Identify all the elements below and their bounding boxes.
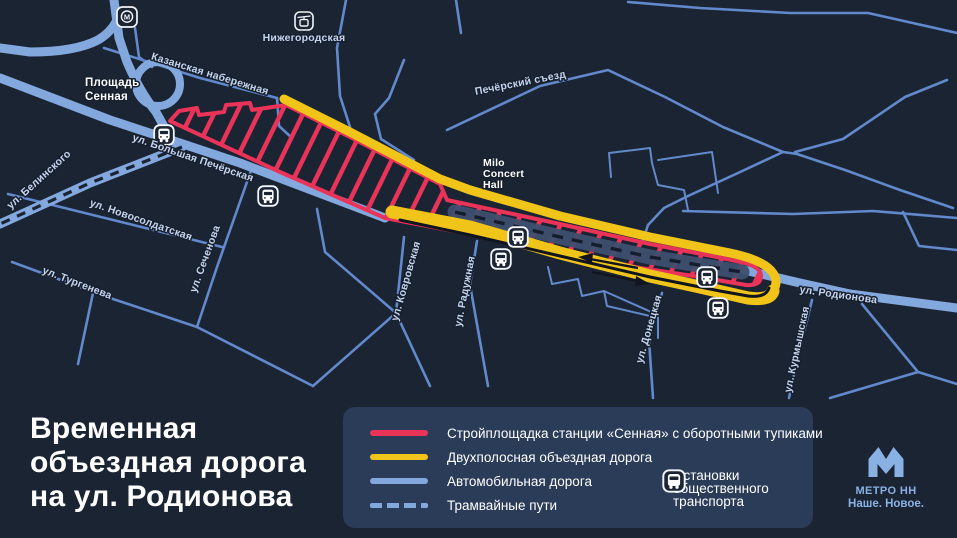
bus-stop-icon (491, 249, 511, 269)
street-label-novosoldatskaya: ул. Новосолдатская (88, 197, 194, 243)
construction-swatch (370, 430, 428, 436)
title-line-1: Временная (30, 412, 306, 446)
brand-tagline: Наше. Новое. (848, 498, 924, 510)
page-title: Временная объездная дорога на ул. Родион… (30, 412, 306, 514)
legend-label: Стройплощадка станции «Сенная» с оборотн… (447, 426, 823, 441)
brand-name: МЕТРО НН (848, 485, 924, 497)
place-label-milo-3: Hall (483, 179, 503, 191)
car-road-swatch (370, 478, 428, 484)
bus-stop-icon (508, 227, 528, 247)
legend-label: Двухполосная объездная дорога (447, 450, 652, 465)
stops-label: Остановки общественного транспорта (673, 469, 769, 508)
bus-stop-icon (258, 186, 278, 206)
metro-m-glyph: М (124, 12, 130, 21)
street-label-turgeneva: ул. Тургенева (41, 264, 114, 302)
metro-station-icon: М (117, 7, 137, 27)
metro-logo-icon (868, 447, 904, 477)
infographic-canvas: М Площадь Сенная Нижегородская Казанская… (0, 0, 957, 538)
place-label-sennaya-1: Площадь (85, 77, 139, 89)
bus-stop-icon (662, 469, 686, 493)
legend-item-construction: Стройплощадка станции «Сенная» с оборотн… (370, 426, 823, 440)
place-label-nizhegorodskaya: Нижегородская (263, 32, 346, 44)
legend-label: Автомобильная дорога (447, 474, 592, 489)
cablecar-icon (295, 12, 313, 30)
street-label-kovrovskaya: ул. Ковровская (389, 240, 423, 322)
major-roads (0, 0, 957, 308)
street-label-kazanskaya: Казанская набережная (150, 51, 270, 98)
bypass-swatch (370, 454, 428, 460)
bus-stop-icon (708, 298, 728, 318)
legend-item-bypass: Двухполосная объездная дорога (370, 450, 823, 464)
title-line-3: на ул. Родионова (30, 480, 306, 514)
legend-item-stops: Остановки общественного транспорта (662, 469, 769, 508)
road-sennaya-ramp (0, 22, 116, 52)
street-label-kurmyshskaya: ул. Курмышская (782, 305, 812, 394)
bus-stop-icon (697, 267, 717, 287)
street-label-raduzhnaya: ул. Радужная (452, 255, 477, 328)
tram-swatch (370, 503, 428, 508)
title-line-2: объездная дорога (30, 446, 306, 480)
legend-panel: Стройплощадка станции «Сенная» с оборотн… (343, 407, 813, 528)
brand-block: МЕТРО НН Наше. Новое. (848, 447, 924, 510)
place-label-sennaya-2: Сенная (85, 91, 128, 103)
legend-label: Трамвайные пути (447, 498, 557, 513)
